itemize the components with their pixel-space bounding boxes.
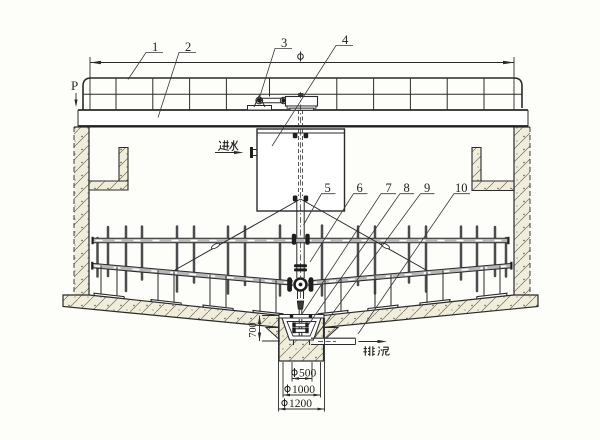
svg-text:8: 8 [404, 181, 410, 195]
svg-text:9: 9 [424, 181, 430, 195]
svg-text:500: 500 [299, 368, 317, 380]
svg-text:700: 700 [248, 323, 259, 338]
svg-text:7: 7 [386, 181, 392, 195]
svg-text:5: 5 [325, 181, 331, 195]
svg-text:3: 3 [281, 36, 287, 50]
svg-text:6: 6 [357, 181, 363, 195]
svg-text:4: 4 [342, 33, 349, 47]
svg-text:10: 10 [455, 181, 468, 195]
svg-text:2: 2 [185, 40, 191, 54]
svg-text:P: P [71, 78, 78, 93]
svg-text:1200: 1200 [289, 398, 312, 410]
svg-text:1: 1 [152, 40, 158, 54]
svg-text:1000: 1000 [292, 384, 315, 396]
